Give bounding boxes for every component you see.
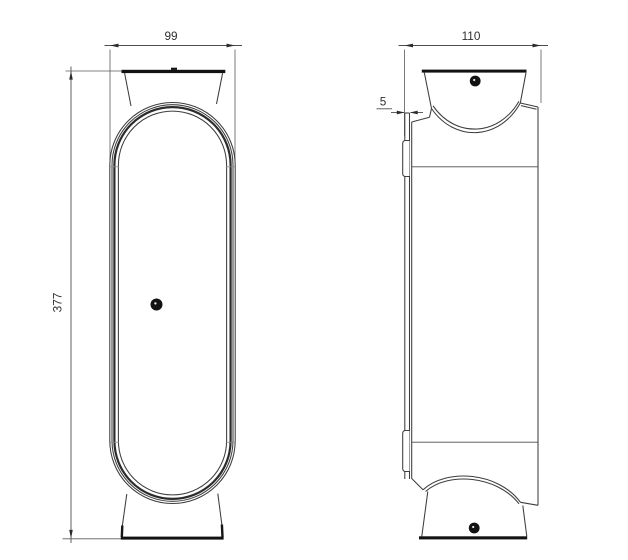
dim-arrow-left bbox=[405, 44, 414, 48]
cup-bottom-plate bbox=[419, 536, 527, 539]
side-view: 110 5 bbox=[377, 29, 549, 539]
front-width-label: 99 bbox=[164, 29, 177, 43]
dim-arrow-up bbox=[69, 71, 73, 80]
dim-arrow-right bbox=[533, 44, 542, 48]
dim-arrow-right-point bbox=[397, 111, 405, 115]
mounting-clip-bottom bbox=[403, 431, 410, 472]
technical-drawing-canvas: 99 377 bbox=[0, 0, 628, 560]
side-bottom-cup bbox=[419, 492, 527, 540]
front-view: 99 377 bbox=[51, 29, 243, 543]
side-body bbox=[412, 107, 538, 505]
dim-arrow-left-point bbox=[410, 111, 418, 115]
mounting-clip-top bbox=[403, 141, 410, 177]
side-wall-plate bbox=[403, 113, 410, 479]
body-bottom-dome-inner bbox=[426, 479, 520, 504]
technical-drawing-sheet: 99 377 bbox=[0, 0, 628, 560]
screw-icon bbox=[469, 523, 480, 534]
plate-thickness-label: 5 bbox=[380, 95, 387, 109]
canopy-top-plate bbox=[122, 70, 226, 73]
cup-top-plate bbox=[422, 70, 527, 73]
dim-arrow-down bbox=[69, 530, 73, 539]
screw-icon bbox=[151, 299, 163, 311]
front-height-label: 377 bbox=[51, 293, 65, 313]
canopy-bottom-plate bbox=[121, 537, 224, 540]
capsule-outer-ring bbox=[110, 103, 235, 504]
side-top-cup bbox=[422, 70, 538, 133]
canopy-screw-edge bbox=[171, 68, 177, 70]
front-top-canopy bbox=[122, 68, 226, 106]
screw-icon bbox=[470, 76, 481, 87]
side-plate-thickness-dimension: 5 bbox=[377, 95, 424, 115]
dim-arrow-right bbox=[227, 44, 236, 48]
side-depth-label: 110 bbox=[462, 29, 481, 43]
dim-arrow-left bbox=[110, 44, 119, 48]
front-capsule-body bbox=[110, 103, 235, 504]
